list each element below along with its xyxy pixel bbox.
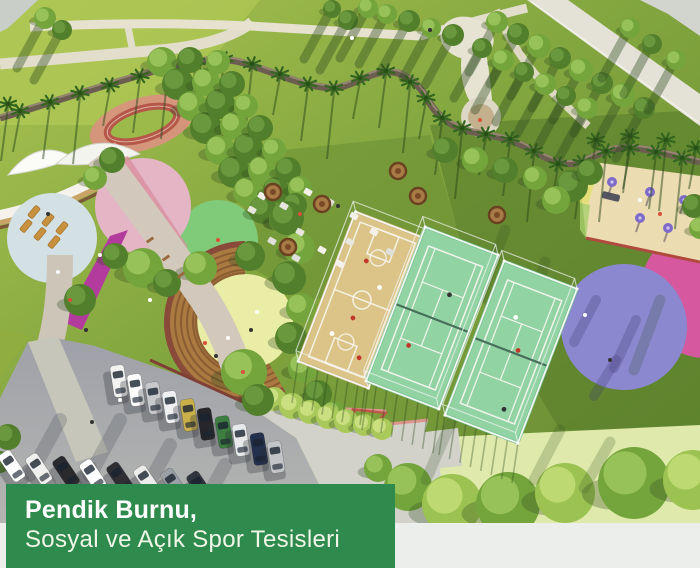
- seating-circle: [280, 239, 296, 255]
- person-dot: [216, 238, 220, 242]
- person-dot: [68, 298, 72, 302]
- person-dot: [226, 336, 230, 340]
- seating-circle: [410, 188, 426, 204]
- person-dot: [84, 328, 88, 332]
- person-dot: [98, 253, 102, 257]
- person-dot: [255, 310, 259, 314]
- person-dot: [336, 204, 340, 208]
- seating-circle: [265, 184, 281, 200]
- person-dot: [241, 370, 245, 374]
- person-dot: [658, 212, 662, 216]
- seating-circle: [390, 163, 406, 179]
- person-dot: [46, 212, 50, 216]
- person-dot: [608, 358, 612, 362]
- person-dot: [249, 328, 253, 332]
- person-dot: [583, 313, 587, 317]
- seating-circle: [314, 196, 330, 212]
- park-aerial-render-image: [0, 0, 700, 523]
- person-dot: [148, 298, 152, 302]
- person-dot: [298, 212, 302, 216]
- seating-circle: [489, 207, 505, 223]
- caption-subtitle: Sosyal ve Açık Spor Tesisleri: [25, 526, 395, 554]
- scene: [0, 0, 700, 523]
- caption-band: Pendik Burnu, Sosyal ve Açık Spor Tesisl…: [6, 484, 395, 568]
- screenshot: Pendik Burnu, Sosyal ve Açık Spor Tesisl…: [0, 0, 700, 568]
- person-dot: [56, 270, 60, 274]
- person-dot: [118, 398, 122, 402]
- caption-title: Pendik Burnu,: [25, 496, 395, 524]
- person-dot: [214, 354, 218, 358]
- person-dot: [638, 198, 642, 202]
- person-dot: [350, 36, 354, 40]
- person-dot: [428, 28, 432, 32]
- person-dot: [90, 420, 94, 424]
- person-dot: [203, 341, 207, 345]
- person-dot: [478, 118, 482, 122]
